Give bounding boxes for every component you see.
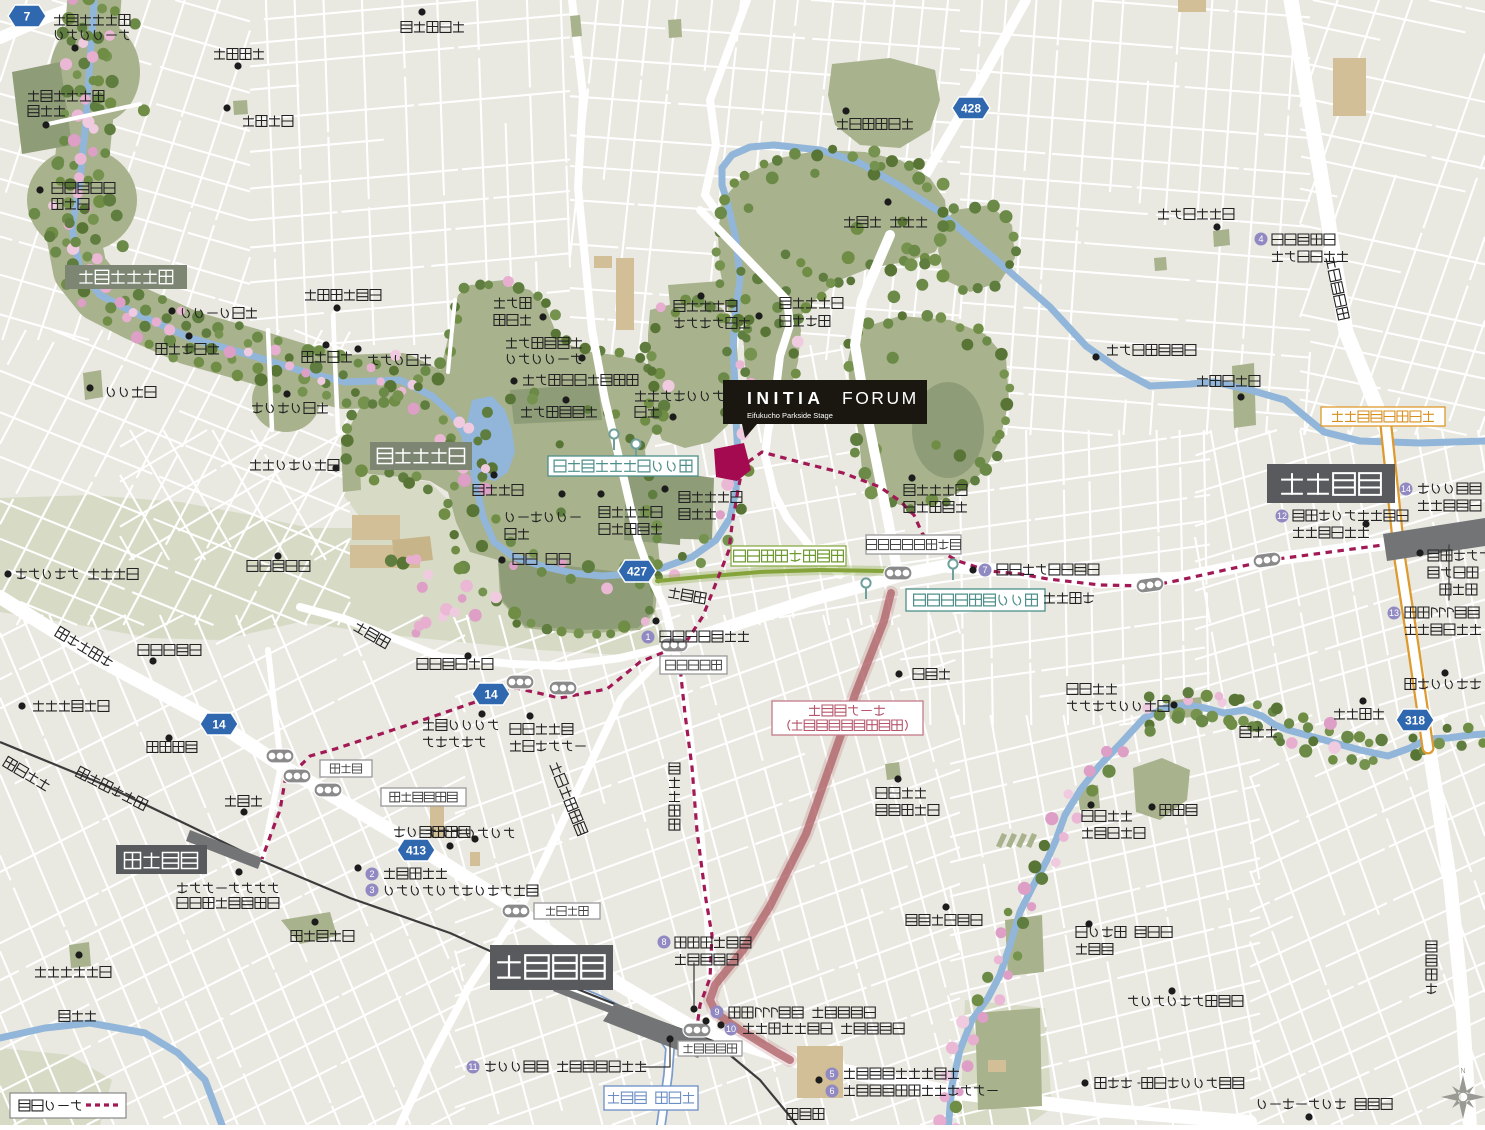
svg-text:FORUM: FORUM [842,388,919,408]
svg-text:8: 8 [661,937,666,947]
svg-text:3: 3 [369,885,374,895]
svg-text:12: 12 [1277,511,1287,521]
svg-text:Eifukucho Parkside Stage: Eifukucho Parkside Stage [747,411,833,420]
svg-text:10: 10 [726,1024,736,1034]
svg-text:14: 14 [212,718,226,732]
svg-text:9: 9 [714,1007,719,1017]
svg-text:2: 2 [369,869,374,879]
svg-text:N: N [1460,1068,1465,1075]
svg-text:7: 7 [982,565,987,575]
svg-text:INITIA: INITIA [747,388,825,408]
svg-text:1: 1 [645,632,650,642]
svg-text:5: 5 [829,1069,834,1079]
svg-text:427: 427 [627,565,647,579]
svg-text:14: 14 [1401,484,1411,494]
svg-text:13: 13 [1389,608,1399,618]
svg-text:4: 4 [1258,234,1263,244]
svg-text:318: 318 [1405,714,1425,728]
svg-text:7: 7 [24,10,31,24]
svg-text:6: 6 [829,1086,834,1096]
svg-text:428: 428 [961,102,981,116]
svg-text:413: 413 [406,844,426,858]
svg-text:14: 14 [484,688,498,702]
svg-text:11: 11 [468,1062,477,1072]
